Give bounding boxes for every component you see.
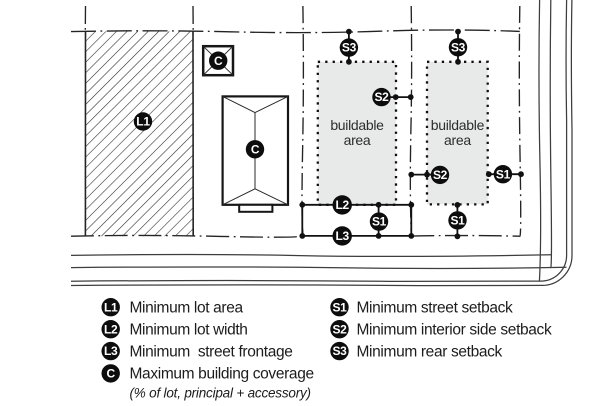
svg-text:C: C <box>214 54 223 68</box>
svg-text:S3: S3 <box>342 41 357 55</box>
svg-text:L1: L1 <box>104 300 118 314</box>
svg-text:S1: S1 <box>332 300 347 314</box>
svg-text:S3: S3 <box>332 344 347 358</box>
svg-text:L2: L2 <box>335 198 349 212</box>
svg-text:C: C <box>107 367 116 381</box>
svg-text:L3: L3 <box>104 344 118 358</box>
svg-text:L3: L3 <box>335 229 349 243</box>
svg-text:buildable: buildable <box>330 117 384 133</box>
svg-text:Minimum street frontage: Minimum street frontage <box>130 343 293 360</box>
svg-text:L1: L1 <box>136 115 150 129</box>
svg-text:C: C <box>251 142 260 156</box>
svg-text:area: area <box>344 132 371 148</box>
svg-text:S2: S2 <box>374 90 389 104</box>
svg-text:Minimum lot area: Minimum lot area <box>130 299 244 316</box>
svg-text:S1: S1 <box>372 215 387 229</box>
svg-text:buildable: buildable <box>431 117 485 133</box>
svg-text:S2: S2 <box>332 322 347 336</box>
svg-text:Minimum interior side setback: Minimum interior side setback <box>357 321 552 338</box>
svg-text:L2: L2 <box>104 322 118 336</box>
svg-text:S3: S3 <box>451 40 466 54</box>
svg-text:Minimum lot width: Minimum lot width <box>130 321 248 338</box>
svg-text:area: area <box>444 132 471 148</box>
svg-text:S2: S2 <box>433 168 448 182</box>
svg-text:Minimum rear setback: Minimum rear setback <box>357 343 503 360</box>
svg-text:(% of lot, principal + accesso: (% of lot, principal + accessory) <box>130 385 311 400</box>
svg-text:S1: S1 <box>450 214 465 228</box>
svg-text:Minimum street setback: Minimum street setback <box>357 299 514 316</box>
svg-text:Maximum building coverage: Maximum building coverage <box>130 366 314 383</box>
svg-text:S1: S1 <box>496 167 511 181</box>
